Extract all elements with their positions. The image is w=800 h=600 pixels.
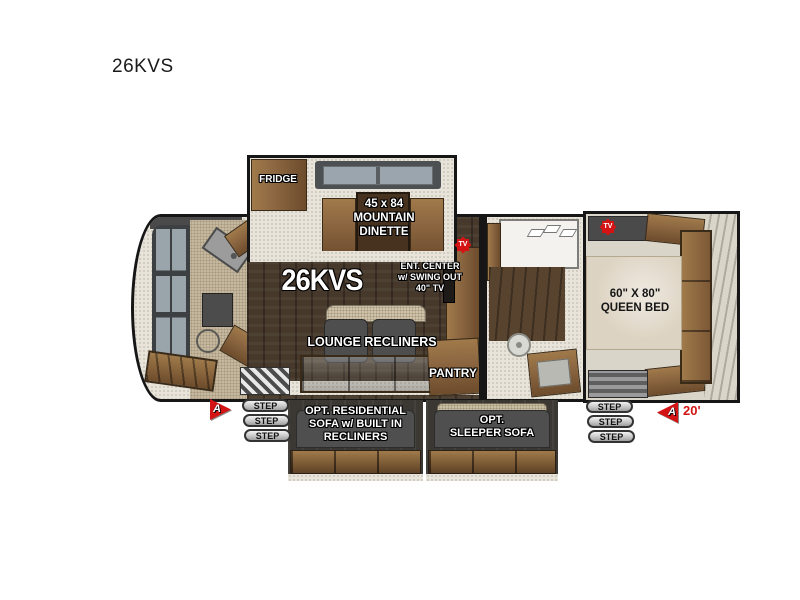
option-residential-sofa: OPT. RESIDENTIAL SOFA w/ BUILT IN RECLIN… bbox=[288, 400, 423, 481]
dinette-label: 45 x 84 MOUNTAIN DINETTE bbox=[328, 198, 440, 239]
entry-step-2: STEP bbox=[243, 414, 290, 427]
step-label: STEP bbox=[255, 416, 279, 426]
step-label: STEP bbox=[598, 402, 622, 412]
fridge-label: FRIDGE bbox=[252, 174, 304, 186]
residential-sofa-label: OPT. RESIDENTIAL SOFA w/ BUILT IN RECLIN… bbox=[288, 405, 423, 445]
shower-shelf bbox=[543, 225, 562, 233]
front-cabinet bbox=[202, 293, 233, 327]
entry-step-3: STEP bbox=[244, 429, 291, 442]
pantry-label: PANTRY bbox=[424, 366, 482, 380]
recliner-footrests bbox=[300, 355, 440, 393]
round-table bbox=[196, 329, 220, 353]
awning-marker-right: A bbox=[657, 402, 678, 423]
floorplan-page: 26KVS FRIDGE 45 x 84 MOUNTAIN DINETTE bbox=[0, 0, 800, 600]
sofa-floor-strip bbox=[288, 474, 423, 481]
sofa-wood-base bbox=[290, 450, 421, 474]
awning-marker-left: A bbox=[210, 399, 231, 420]
entry-door-mat bbox=[240, 367, 290, 395]
queen-bed: 60" X 80" QUEEN BED bbox=[586, 256, 682, 350]
sofa-wood-base bbox=[428, 450, 556, 474]
toilet-flush bbox=[516, 342, 522, 348]
step-label: STEP bbox=[254, 401, 278, 411]
ent-center-label: ENT. CENTER w/ SWING OUT 40" TV bbox=[380, 261, 480, 293]
bathroom-vanity bbox=[527, 349, 581, 398]
bathroom-wall bbox=[479, 214, 487, 402]
awning-marker-label: A bbox=[211, 403, 232, 415]
floorplan-diagram: FRIDGE 45 x 84 MOUNTAIN DINETTE bbox=[0, 0, 800, 600]
shower-shelf bbox=[527, 229, 546, 237]
awning-length-label: 20' bbox=[683, 403, 701, 418]
step-label: STEP bbox=[256, 431, 280, 441]
entry-step-1: STEP bbox=[242, 399, 289, 412]
tv-icon-bedroom: TV bbox=[599, 218, 617, 236]
shower bbox=[499, 219, 579, 269]
bedroom-wardrobe bbox=[680, 230, 712, 384]
bedroom-steps-rug bbox=[588, 370, 648, 398]
step-label: STEP bbox=[600, 432, 624, 442]
lounge-recliners-label: LOUNGE RECLINERS bbox=[302, 335, 442, 350]
bathroom-sink bbox=[537, 358, 572, 387]
bedroom-dresser-top bbox=[588, 216, 650, 241]
sofa-floor-strip bbox=[426, 474, 558, 481]
dinette-window bbox=[315, 161, 441, 189]
bedroom-step-2: STEP bbox=[587, 415, 634, 428]
bedroom-step-3: STEP bbox=[588, 430, 635, 443]
bedroom: 60" X 80" QUEEN BED bbox=[583, 211, 740, 403]
bathroom-floor bbox=[489, 267, 565, 341]
tv-icon-living: TV bbox=[454, 236, 472, 254]
front-window-pane bbox=[156, 229, 186, 359]
queen-bed-label: 60" X 80" QUEEN BED bbox=[587, 287, 683, 316]
option-sleeper-sofa: OPT. SLEEPER SOFA bbox=[426, 400, 558, 481]
bathroom bbox=[487, 217, 581, 399]
model-label: 26KVS bbox=[268, 263, 376, 299]
sleeper-sofa-label: OPT. SLEEPER SOFA bbox=[426, 414, 558, 440]
slideout-floor-strip bbox=[310, 251, 454, 262]
shower-shelf bbox=[559, 229, 578, 237]
step-label: STEP bbox=[599, 417, 623, 427]
awning-marker-label: A bbox=[657, 406, 678, 418]
tv-icon-label: TV bbox=[599, 223, 617, 230]
front-window bbox=[152, 225, 190, 363]
tv-icon-label: TV bbox=[454, 241, 472, 248]
bedroom-step-1: STEP bbox=[586, 400, 633, 413]
dinette-slideout: FRIDGE 45 x 84 MOUNTAIN DINETTE bbox=[247, 155, 457, 262]
dinette-window-pane bbox=[323, 166, 433, 185]
